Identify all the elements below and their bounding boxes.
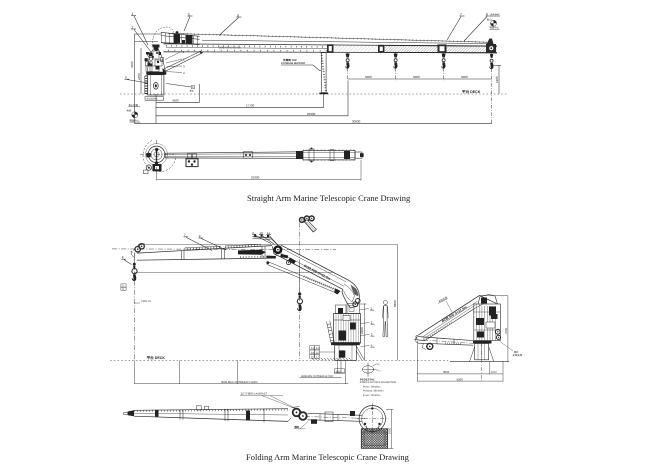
svg-text:撑杆: 撑杆 [295, 425, 300, 429]
svg-text:5000: 5000 [461, 75, 468, 79]
svg-text:4500: 4500 [172, 98, 179, 102]
svg-text:3: 3 [183, 65, 185, 69]
svg-text:30000: 30000 [352, 119, 361, 123]
svg-text:2200: 2200 [360, 327, 364, 334]
svg-text:3300: 3300 [130, 61, 134, 68]
svg-text:BOB.500 S=30.5m: BOB.500 S=30.5m [219, 47, 241, 50]
svg-text:平台 DECK: 平台 DECK [462, 89, 481, 94]
svg-text:P₂₁₁: P₂₁₁ [377, 369, 381, 372]
svg-text:1007: 1007 [491, 371, 497, 374]
svg-text:P₁: P₁ [378, 363, 381, 366]
svg-text:支架支撑: 支架支撑 [513, 353, 523, 357]
svg-text:17700: 17700 [246, 104, 255, 108]
svg-text:4: 4 [183, 71, 185, 75]
svg-text:P max = 700 kN/m: P max = 700 kN/m [363, 385, 381, 388]
svg-text:25000: 25000 [307, 112, 316, 116]
svg-text:600: 600 [336, 370, 341, 373]
svg-text:涂装色标: 涂装色标 [490, 13, 500, 17]
svg-text:FORCES ON DECK FOUNDATION: FORCES ON DECK FOUNDATION [360, 381, 397, 384]
svg-text:基座: 基座 [190, 89, 194, 92]
svg-text:25000: 25000 [251, 175, 260, 179]
svg-text:F max = 120 kN/m: F max = 120 kN/m [363, 394, 381, 397]
svg-text:BOB MIN OUTREACH 2000: BOB MIN OUTREACH 2000 [302, 375, 334, 378]
svg-text:1905: 1905 [495, 76, 499, 83]
svg-text:1500: 1500 [387, 427, 391, 434]
svg-text:5000: 5000 [413, 75, 420, 79]
svg-text:BOB.500 S=11.5m: BOB.500 S=11.5m [441, 305, 468, 323]
svg-text:3700: 3700 [504, 327, 508, 334]
svg-text:5800: 5800 [393, 300, 397, 307]
svg-text:▽W.L+5: ▽W.L+5 [141, 299, 152, 303]
svg-text:PEDESTAL: PEDESTAL [360, 377, 375, 381]
svg-text:色标: 色标 [127, 109, 132, 113]
svg-text:4200: 4200 [457, 377, 464, 381]
svg-text:5000: 5000 [365, 75, 372, 79]
svg-text:2: 2 [183, 58, 185, 62]
svg-text:BOB MAX OUTREACH 11000: BOB MAX OUTREACH 11000 [221, 381, 258, 384]
svg-text:平台 DECK: 平台 DECK [147, 355, 166, 360]
svg-text:2450: 2450 [137, 73, 141, 80]
svg-text:立门下部引入ALBRAST: 立门下部引入ALBRAST [241, 392, 268, 396]
svg-text:P vertical = 350 kN/m: P vertical = 350 kN/m [363, 390, 384, 393]
svg-text:3050: 3050 [443, 370, 450, 374]
